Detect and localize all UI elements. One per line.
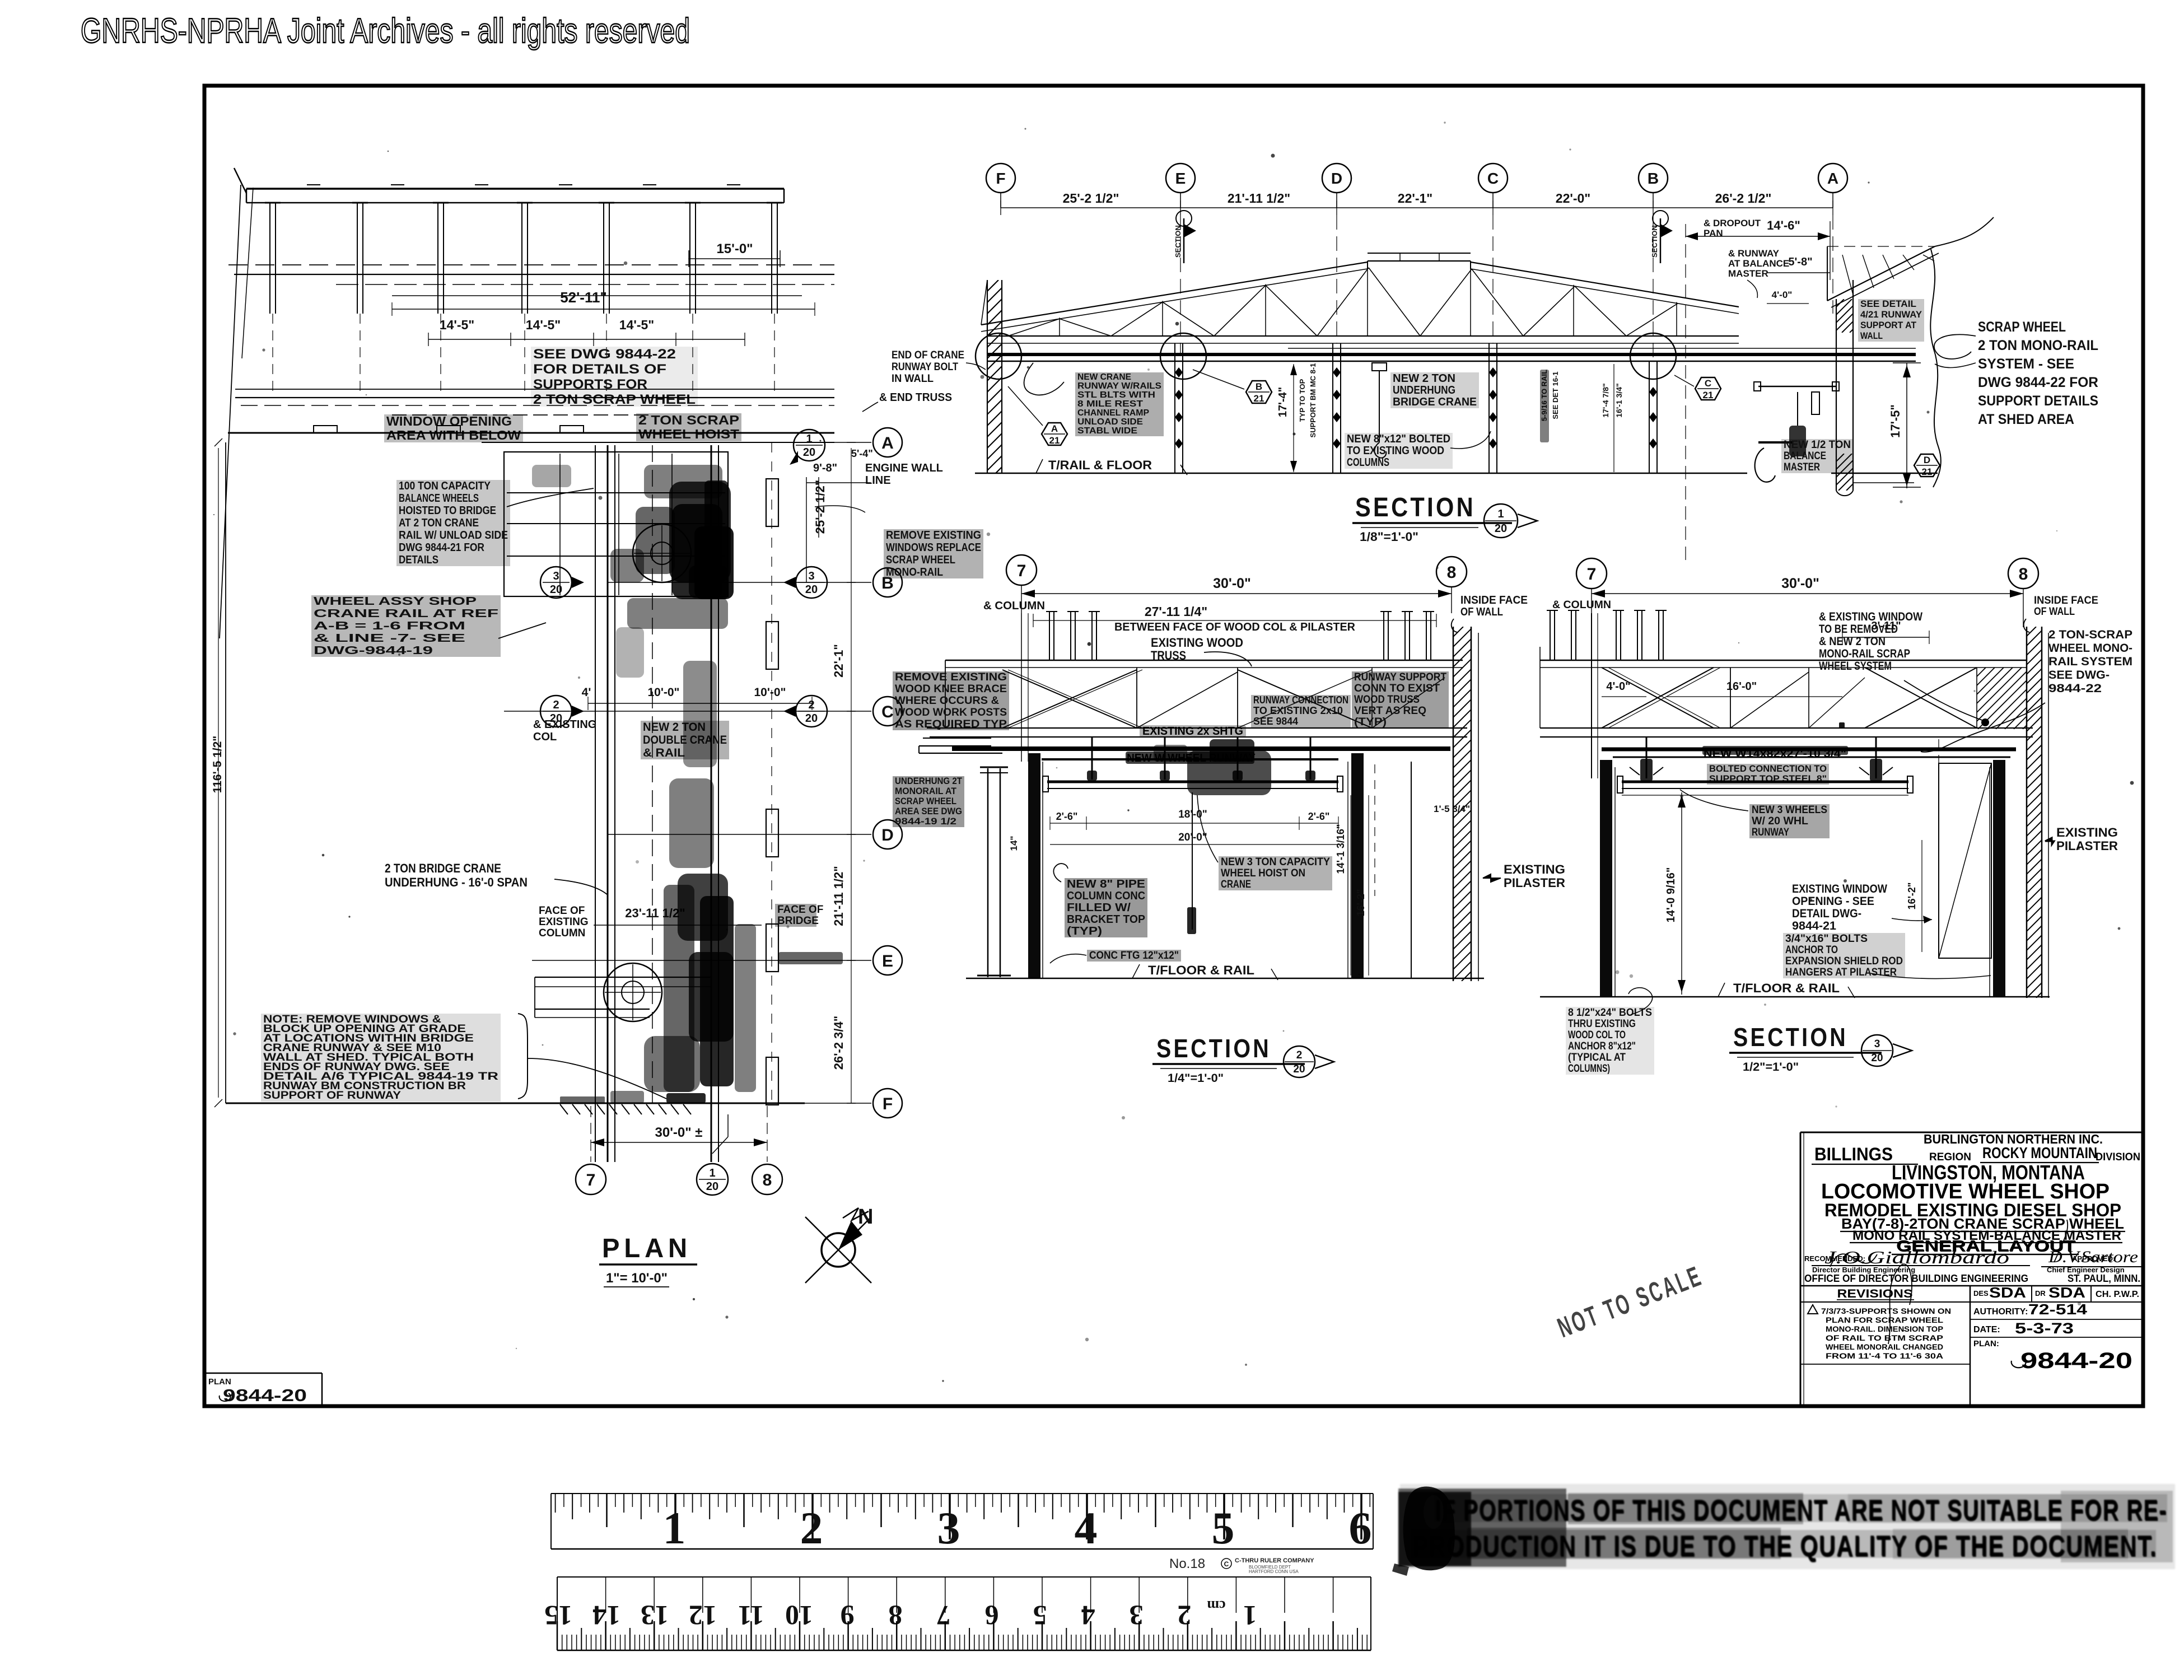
svg-text:RUNWAY CONNECTION: RUNWAY CONNECTION (1253, 694, 1348, 706)
svg-text:FACE OF: FACE OF (539, 905, 585, 917)
svg-text:SEE DETAIL: SEE DETAIL (1860, 298, 1916, 309)
svg-text:2: 2 (1296, 1049, 1303, 1061)
svg-text:SCRAP WHEEL: SCRAP WHEEL (886, 554, 955, 566)
svg-text:A: A (1051, 423, 1058, 434)
svg-text:16'-1 3/4": 16'-1 3/4" (1614, 383, 1623, 417)
svg-text:INSIDE FACE: INSIDE FACE (1460, 594, 1528, 606)
svg-text:NEW 1/2 TON: NEW 1/2 TON (1784, 439, 1851, 451)
svg-text:OFFICE OF DIRECTOR BUILDING EN: OFFICE OF DIRECTOR BUILDING ENGINEERING (1804, 1273, 2028, 1284)
svg-text:A: A (1827, 170, 1838, 187)
svg-text:21'-11 1/2": 21'-11 1/2" (1228, 191, 1290, 206)
svg-text:15'-0": 15'-0" (716, 241, 753, 256)
svg-text:COL: COL (533, 731, 557, 743)
svg-text:FOR DETAILS OF: FOR DETAILS OF (533, 362, 666, 377)
svg-text:21: 21 (1254, 393, 1264, 404)
svg-text:EXISTING WINDOW: EXISTING WINDOW (1792, 883, 1887, 895)
svg-text:C: C (881, 703, 894, 721)
svg-text:7: 7 (1587, 565, 1597, 584)
svg-text:NEW 2 TON: NEW 2 TON (1393, 372, 1455, 385)
svg-text:N: N (858, 1205, 873, 1229)
svg-text:No.18: No.18 (1169, 1556, 1205, 1571)
svg-text:8: 8 (763, 1171, 772, 1189)
svg-text:27'-11 1/4": 27'-11 1/4" (1145, 604, 1207, 619)
svg-text:MONORAIL AT: MONORAIL AT (895, 786, 957, 796)
svg-text:22'-0": 22'-0" (1556, 191, 1590, 206)
svg-text:AS REQUIRED TYP: AS REQUIRED TYP (895, 718, 1007, 730)
svg-text:2 TON MONO-RAIL: 2 TON MONO-RAIL (1978, 338, 2098, 353)
svg-text:RUNWAY BOLT: RUNWAY BOLT (892, 361, 958, 373)
svg-text:LINE: LINE (865, 474, 891, 487)
svg-text:UNLOAD SIDE: UNLOAD SIDE (1077, 417, 1143, 427)
svg-text:END OF CRANE: END OF CRANE (892, 349, 964, 361)
svg-text:EXISTING WOOD: EXISTING WOOD (1151, 636, 1243, 650)
svg-text:NEW 3 WHEELS: NEW 3 WHEELS (1752, 804, 1827, 816)
svg-text:SECTION: SECTION (1355, 493, 1476, 522)
svg-text:BILLINGS: BILLINGS (1814, 1144, 1893, 1164)
svg-text:(TYP): (TYP) (1067, 925, 1102, 937)
svg-text:MASTER: MASTER (1728, 268, 1768, 279)
svg-text:DR: DR (2035, 1289, 2046, 1298)
svg-text:& RUNWAY: & RUNWAY (1728, 248, 1780, 259)
svg-text:ANCHOR 8"x12": ANCHOR 8"x12" (1568, 1040, 1636, 1052)
svg-text:30'-0": 30'-0" (1213, 576, 1251, 591)
svg-text:4'-0": 4'-0" (1772, 290, 1793, 300)
svg-text:FACE OF: FACE OF (777, 904, 823, 916)
svg-text:DETAIL DWG-: DETAIL DWG- (1792, 907, 1861, 920)
svg-text:52'-11": 52'-11" (560, 289, 607, 306)
svg-text:E: E (882, 952, 893, 970)
svg-text:BRIDGE CRANE: BRIDGE CRANE (1393, 396, 1477, 408)
svg-text:14'-0 9/16": 14'-0 9/16" (1665, 867, 1677, 923)
svg-text:TO EXISTING 2x10: TO EXISTING 2x10 (1253, 705, 1343, 716)
svg-text:5-3-73: 5-3-73 (2015, 1320, 2074, 1337)
svg-text:F: F (996, 170, 1005, 187)
svg-text:22'-1": 22'-1" (832, 644, 846, 678)
svg-text:AREA SEE DWG: AREA SEE DWG (895, 806, 962, 816)
svg-text:C: C (1705, 378, 1711, 389)
svg-text:RAIL SYSTEM: RAIL SYSTEM (2048, 655, 2132, 668)
svg-text:VERT AS REQ: VERT AS REQ (1354, 705, 1426, 717)
svg-text:14'-5": 14'-5" (619, 318, 654, 332)
svg-text:D.V.Sartore: D.V.Sartore (2048, 1248, 2138, 1266)
svg-text:20: 20 (1495, 522, 1507, 535)
svg-text:4/21 RUNWAY: 4/21 RUNWAY (1860, 309, 1922, 320)
svg-text:9844-22: 9844-22 (2048, 682, 2102, 695)
svg-text:3: 3 (1130, 1600, 1144, 1631)
svg-text:RUNWAY SUPPORT: RUNWAY SUPPORT (1354, 671, 1446, 683)
svg-text:& LINE -7- SEE: & LINE -7- SEE (314, 632, 465, 645)
svg-text:20: 20 (803, 446, 815, 459)
svg-text:10'-0": 10'-0" (754, 686, 786, 699)
svg-text:REMOVE EXISTING: REMOVE EXISTING (895, 671, 1007, 683)
svg-text:2: 2 (1178, 1600, 1192, 1631)
svg-text:& END TRUSS: & END TRUSS (879, 391, 952, 404)
svg-text:18'-0": 18'-0" (1178, 809, 1207, 820)
svg-text:UNDERHUNG 2T: UNDERHUNG 2T (895, 776, 963, 786)
svg-text:17'-4 7/8": 17'-4 7/8" (1601, 383, 1610, 417)
svg-text:8 MILE REST: 8 MILE REST (1077, 399, 1143, 409)
svg-text:SCRAP WHEEL: SCRAP WHEEL (895, 796, 956, 806)
svg-text:COLUMN: COLUMN (539, 927, 585, 939)
svg-text:T/FLOOR & RAIL: T/FLOOR & RAIL (1733, 981, 1840, 995)
svg-text:EXISTING: EXISTING (539, 916, 589, 928)
svg-text:WINDOW OPENING: WINDOW OPENING (386, 414, 512, 428)
svg-text:14": 14" (1009, 836, 1019, 851)
svg-text:& RAIL: & RAIL (643, 746, 685, 759)
svg-text:NEW 3 TON CAPACITY: NEW 3 TON CAPACITY (1221, 856, 1330, 868)
svg-text:17'-5": 17'-5" (1888, 404, 1902, 438)
svg-text:15: 15 (544, 1600, 572, 1631)
svg-text:C: C (1224, 1560, 1229, 1568)
svg-text:8: 8 (889, 1600, 903, 1631)
svg-text:SYSTEM - SEE: SYSTEM - SEE (1978, 356, 2074, 372)
svg-text:IN WALL: IN WALL (892, 373, 934, 385)
svg-text:EXISTING: EXISTING (1504, 862, 1565, 876)
svg-text:D: D (881, 826, 894, 844)
svg-text:22'-1": 22'-1" (1398, 191, 1432, 206)
svg-text:SUPPORT AT: SUPPORT AT (1860, 320, 1917, 330)
svg-text:F: F (883, 1095, 893, 1113)
svg-text:(TYPICAL AT: (TYPICAL AT (1568, 1052, 1626, 1063)
svg-text:2'-6": 2'-6" (1308, 811, 1330, 822)
svg-text:A: A (881, 434, 894, 452)
svg-text:WOOD WORK POSTS: WOOD WORK POSTS (895, 707, 1007, 718)
svg-text:CHANNEL RAMP: CHANNEL RAMP (1077, 408, 1149, 418)
svg-text:AUTHORITY:: AUTHORITY: (1973, 1307, 2028, 1317)
svg-text:PILASTER: PILASTER (2056, 839, 2118, 853)
svg-text:14'-1 3/16": 14'-1 3/16" (1335, 824, 1346, 874)
svg-text:3: 3 (553, 570, 559, 582)
svg-text:NEW 8" PIPE: NEW 8" PIPE (1067, 878, 1145, 890)
svg-text:7/3/73-SUPPORTS SHOWN ON: 7/3/73-SUPPORTS SHOWN ON (1821, 1306, 1951, 1315)
svg-text:5: 5 (1212, 1502, 1235, 1553)
svg-text:COLUMNS: COLUMNS (1347, 456, 1389, 469)
svg-text:INSIDE FACE: INSIDE FACE (2034, 595, 2098, 606)
svg-text:20: 20 (550, 584, 562, 596)
svg-text:REMOVE EXISTING: REMOVE EXISTING (886, 529, 981, 542)
svg-text:20'-0": 20'-0" (1178, 832, 1207, 843)
svg-text:ENGINE WALL: ENGINE WALL (865, 462, 943, 474)
svg-text:MONO-RAIL: MONO-RAIL (886, 566, 943, 578)
svg-text:SEE DWG-: SEE DWG- (2048, 669, 2110, 682)
svg-text:21: 21 (1703, 390, 1714, 400)
svg-text:COLUMNS): COLUMNS) (1568, 1063, 1610, 1075)
svg-text:1: 1 (806, 433, 812, 445)
svg-text:CONC FTG 12"x12": CONC FTG 12"x12" (1089, 950, 1179, 962)
svg-text:SECTION: SECTION (1156, 1034, 1271, 1063)
svg-text:2'-6": 2'-6" (1056, 811, 1078, 822)
svg-text:9'-8": 9'-8" (813, 462, 837, 474)
svg-text:6: 6 (1349, 1502, 1372, 1553)
svg-text:WHEEL HOIST ON: WHEEL HOIST ON (1221, 867, 1305, 879)
svg-text:3: 3 (808, 570, 814, 582)
svg-text:21: 21 (1922, 466, 1933, 477)
svg-text:1: 1 (1243, 1600, 1257, 1631)
svg-text:CRANE RAIL AT REF: CRANE RAIL AT REF (314, 608, 498, 620)
svg-text:WHERE OCCURS &: WHERE OCCURS & (895, 695, 999, 707)
svg-text:EXPANSION SHIELD ROD: EXPANSION SHIELD ROD (1785, 955, 1903, 967)
svg-text:30'-0" ±: 30'-0" ± (655, 1125, 703, 1140)
svg-text:WHEEL ASSY SHOP: WHEEL ASSY SHOP (314, 595, 477, 608)
svg-text:FILLED W/: FILLED W/ (1067, 902, 1131, 914)
svg-text:WOOD COL TO: WOOD COL TO (1568, 1029, 1626, 1041)
svg-text:C-THRU RULER COMPANY: C-THRU RULER COMPANY (1235, 1557, 1314, 1564)
svg-text:2 TON SCRAP WHEEL: 2 TON SCRAP WHEEL (533, 392, 696, 407)
svg-text:ROCKY MOUNTAIN: ROCKY MOUNTAIN (1982, 1144, 2097, 1161)
svg-text:(TYP): (TYP) (1354, 716, 1387, 728)
svg-text:26'-2 3/4": 26'-2 3/4" (832, 1016, 846, 1070)
svg-text:PILASTER: PILASTER (1504, 876, 1565, 890)
svg-text:DIVISION: DIVISION (2096, 1151, 2140, 1163)
svg-text:9844-20: 9844-20 (223, 1385, 307, 1405)
svg-text:2 TON SCRAP: 2 TON SCRAP (638, 413, 739, 427)
svg-text:DATE:: DATE: (1973, 1325, 2000, 1334)
svg-text:25'-2 1/2": 25'-2 1/2" (1063, 191, 1119, 206)
svg-text:1"= 10'-0": 1"= 10'-0" (606, 1271, 668, 1286)
svg-text:8: 8 (1447, 563, 1457, 582)
svg-text:PLAN FOR SCRAP WHEEL: PLAN FOR SCRAP WHEEL (1826, 1315, 1944, 1324)
svg-text:20: 20 (805, 584, 818, 596)
svg-text:DWG 9844-22 FOR: DWG 9844-22 FOR (1978, 375, 2098, 390)
svg-text:3: 3 (937, 1502, 960, 1553)
svg-text:1: 1 (663, 1502, 686, 1553)
svg-text:20: 20 (805, 712, 818, 725)
svg-text:OPENING - SEE: OPENING - SEE (1792, 895, 1874, 908)
svg-text:TO BE REMOVED: TO BE REMOVED (1819, 623, 1898, 636)
svg-text:14'-5": 14'-5" (440, 318, 474, 332)
svg-text:WHEEL MONO-: WHEEL MONO- (2048, 642, 2132, 655)
svg-text:30'-0": 30'-0" (1781, 576, 1819, 591)
svg-text:cm: cm (1207, 1598, 1226, 1614)
svg-text:8: 8 (2019, 565, 2028, 584)
svg-text:DES: DES (1973, 1289, 1989, 1298)
svg-text:DWG 9844-21 FOR: DWG 9844-21 FOR (399, 542, 484, 554)
svg-text:BRIDGE: BRIDGE (777, 915, 819, 927)
svg-text:2: 2 (800, 1502, 823, 1553)
svg-text:SEE 9844: SEE 9844 (1253, 716, 1298, 727)
svg-text:16'-2": 16'-2" (1355, 889, 1366, 917)
svg-text:T/FLOOR & RAIL: T/FLOOR & RAIL (1148, 963, 1254, 977)
svg-text:D: D (1924, 455, 1930, 465)
svg-text:ST. PAUL, MINN.: ST. PAUL, MINN. (2068, 1273, 2140, 1284)
svg-text:GNRHS-NPRHA Joint Archives - a: GNRHS-NPRHA Joint Archives - all rights … (81, 12, 690, 50)
svg-text:7: 7 (937, 1600, 951, 1631)
svg-text:SUPPORT OF RUNWAY: SUPPORT OF RUNWAY (263, 1090, 401, 1102)
svg-text:10'-0": 10'-0" (648, 686, 680, 699)
svg-text:ANCHOR TO: ANCHOR TO (1785, 944, 1838, 956)
svg-text:SUPPORTS FOR: SUPPORTS FOR (533, 377, 647, 392)
svg-text:SDA: SDA (1989, 1284, 2026, 1301)
svg-text:PAN: PAN (1704, 228, 1723, 239)
svg-text:7: 7 (1017, 562, 1026, 580)
svg-text:MASTER: MASTER (1784, 461, 1820, 473)
svg-text:21'-11 1/2": 21'-11 1/2" (832, 866, 846, 926)
svg-text:1: 1 (709, 1167, 715, 1179)
svg-text:9: 9 (841, 1600, 855, 1631)
svg-text:26'-2 1/2": 26'-2 1/2" (1715, 191, 1772, 206)
svg-text:1/4"=1'-0": 1/4"=1'-0" (1168, 1072, 1224, 1085)
svg-text:14'-6": 14'-6" (1767, 218, 1800, 232)
svg-text:20: 20 (1871, 1052, 1883, 1064)
svg-text:SECTION: SECTION (1174, 225, 1182, 258)
svg-text:OF RAIL TO BTM SCRAP: OF RAIL TO BTM SCRAP (1826, 1333, 1943, 1342)
svg-text:SCRAP WHEEL: SCRAP WHEEL (1978, 319, 2066, 335)
svg-text:SECTION: SECTION (1650, 225, 1659, 258)
svg-text:AT 2 TON CRANE: AT 2 TON CRANE (399, 517, 479, 529)
svg-text:2: 2 (553, 699, 559, 711)
svg-text:3: 3 (1874, 1038, 1880, 1050)
svg-text:HOISTED TO BRIDGE: HOISTED TO BRIDGE (399, 505, 496, 517)
svg-text:CONN TO EXIST: CONN TO EXIST (1354, 683, 1440, 694)
svg-text:WINDOWS REPLACE: WINDOWS REPLACE (886, 542, 981, 554)
svg-text:14: 14 (592, 1600, 620, 1631)
svg-text:HARTFORD CONN USA: HARTFORD CONN USA (1249, 1569, 1299, 1574)
svg-text:E: E (1175, 170, 1186, 187)
svg-text:4'-0": 4'-0" (1606, 680, 1630, 693)
svg-text:WALL: WALL (1860, 330, 1883, 341)
svg-text:20: 20 (706, 1180, 718, 1193)
svg-text:9844-21: 9844-21 (1792, 920, 1836, 932)
svg-text:2: 2 (808, 699, 814, 711)
svg-text:BOLTED CONNECTION TO: BOLTED CONNECTION TO (1709, 763, 1827, 774)
svg-text:14'-5": 14'-5" (526, 318, 561, 332)
svg-text:AT BALANCE: AT BALANCE (1728, 258, 1789, 269)
svg-text:RUNWAY: RUNWAY (1752, 827, 1789, 838)
svg-text:A-B = 1-6 FROM: A-B = 1-6 FROM (314, 620, 465, 632)
svg-text:STABL WIDE: STABL WIDE (1077, 426, 1137, 436)
svg-text:21: 21 (1049, 435, 1060, 446)
svg-text:5'-4": 5'-4" (851, 448, 873, 459)
svg-text:RUNWAY W/RAILS: RUNWAY W/RAILS (1077, 381, 1161, 391)
svg-text:AT SHED AREA: AT SHED AREA (1978, 412, 2074, 427)
svg-text:WHEEL SYSTEM: WHEEL SYSTEM (1819, 660, 1892, 673)
svg-text:MONO-RAIL. DIMENSION TOP: MONO-RAIL. DIMENSION TOP (1826, 1324, 1943, 1333)
svg-text:& EXISTING: & EXISTING (533, 718, 596, 731)
svg-text:20: 20 (1293, 1063, 1305, 1075)
svg-text:5'-8": 5'-8" (1788, 256, 1812, 268)
svg-text:1: 1 (1497, 508, 1504, 520)
svg-text:3/4"x16" BOLTS: 3/4"x16" BOLTS (1785, 933, 1868, 945)
svg-text:DWG-9844-19: DWG-9844-19 (314, 645, 433, 657)
svg-text:SUPPORT BM MC 8-1: SUPPORT BM MC 8-1 (1309, 363, 1317, 438)
svg-text:B: B (1256, 381, 1262, 392)
svg-text:CRANE: CRANE (1221, 879, 1251, 890)
svg-text:WHEEL HOIST: WHEEL HOIST (638, 427, 739, 441)
svg-text:PLAN: PLAN (602, 1234, 692, 1263)
svg-text:7: 7 (586, 1171, 596, 1189)
svg-text:NEW W14x82x27'-10 3/4": NEW W14x82x27'-10 3/4" (1704, 748, 1846, 760)
svg-text:9844-19 1/2: 9844-19 1/2 (895, 816, 956, 827)
svg-text:TRUSS: TRUSS (1151, 648, 1186, 662)
svg-text:& COLUMN: & COLUMN (983, 600, 1045, 612)
svg-text:& NEW 2 TON: & NEW 2 TON (1819, 635, 1886, 648)
svg-text:2 TON BRIDGE CRANE: 2 TON BRIDGE CRANE (385, 861, 501, 875)
svg-text:SEE DET 16-1: SEE DET 16-1 (1551, 371, 1560, 419)
svg-text:RAIL W/ UNLOAD SIDE: RAIL W/ UNLOAD SIDE (399, 529, 508, 542)
svg-text:WHEEL MONORAIL CHANGED: WHEEL MONORAIL CHANGED (1826, 1342, 1943, 1351)
svg-text:WOOD TRUSS: WOOD TRUSS (1354, 694, 1420, 706)
svg-text:REVISIONS: REVISIONS (1837, 1287, 1913, 1300)
svg-text:& DROPOUT: & DROPOUT (1704, 218, 1761, 228)
svg-text:NEW CRANE: NEW CRANE (1077, 372, 1131, 382)
svg-text:17'-4": 17'-4" (1277, 387, 1289, 417)
svg-text:DETAILS: DETAILS (399, 554, 438, 566)
svg-text:TO EXISTING WOOD: TO EXISTING WOOD (1347, 445, 1444, 457)
svg-text:6: 6 (985, 1600, 999, 1631)
svg-text:SUPPORT DETAILS: SUPPORT DETAILS (1978, 393, 2098, 409)
svg-text:WOOD KNEE BRACE: WOOD KNEE BRACE (895, 683, 1007, 695)
svg-text:UNDERHUNG: UNDERHUNG (1393, 384, 1455, 396)
svg-text:SDA: SDA (2048, 1284, 2085, 1301)
svg-text:4: 4 (1075, 1502, 1098, 1553)
svg-text:4': 4' (582, 686, 591, 699)
svg-text:AREA WITH BELOW: AREA WITH BELOW (386, 428, 521, 442)
svg-text:BETWEEN FACE OF WOOD COL & PIL: BETWEEN FACE OF WOOD COL & PILASTER (1114, 621, 1356, 633)
svg-text:16'-2": 16'-2" (1906, 883, 1917, 910)
svg-text:T/RAIL & FLOOR: T/RAIL & FLOOR (1048, 458, 1152, 472)
svg-text:BALANCE WHEELS: BALANCE WHEELS (399, 492, 479, 505)
svg-text:1/8"=1'-0": 1/8"=1'-0" (1360, 530, 1418, 544)
svg-text:2 TON-SCRAP: 2 TON-SCRAP (2048, 628, 2132, 641)
svg-text:1'-5 3/4": 1'-5 3/4" (1434, 804, 1470, 814)
svg-text:100 TON CAPACITY: 100 TON CAPACITY (399, 480, 491, 492)
svg-text:8 1/2"x24" BOLTS: 8 1/2"x24" BOLTS (1568, 1007, 1652, 1019)
svg-text:1/2"=1'-0": 1/2"=1'-0" (1743, 1061, 1799, 1074)
svg-text:D: D (1331, 170, 1342, 187)
svg-text:BALANCE: BALANCE (1784, 450, 1826, 462)
svg-text:16'-0": 16'-0" (1726, 680, 1757, 693)
svg-text:W/ 20 WHL: W/ 20 WHL (1752, 815, 1808, 827)
svg-text:FROM 11'-4 TO 11'-6 30A: FROM 11'-4 TO 11'-6 30A (1826, 1351, 1943, 1360)
svg-text:TYP TO TOP: TYP TO TOP (1298, 379, 1306, 422)
svg-text:116'-5 1/2": 116'-5 1/2" (211, 736, 224, 794)
svg-text:THRU EXISTING: THRU EXISTING (1568, 1018, 1636, 1030)
svg-text:& EXISTING WINDOW: & EXISTING WINDOW (1819, 610, 1922, 623)
svg-text:OF WALL: OF WALL (2034, 606, 2075, 618)
svg-text:4: 4 (1081, 1600, 1095, 1631)
svg-text:C: C (1487, 170, 1499, 187)
svg-text:B: B (1648, 170, 1659, 187)
svg-text:OF WALL: OF WALL (1460, 606, 1503, 618)
svg-text:COLUMN CONC: COLUMN CONC (1067, 890, 1145, 902)
svg-text:PLAN:: PLAN: (1973, 1339, 1999, 1348)
svg-text:UNDERHUNG - 16'-0 SPAN: UNDERHUNG - 16'-0 SPAN (385, 875, 528, 889)
svg-text:MONO-RAIL SCRAP: MONO-RAIL SCRAP (1819, 647, 1910, 660)
svg-text:NEW 8"x12" BOLTED: NEW 8"x12" BOLTED (1347, 433, 1450, 445)
svg-text:SEE DWG 9844-22: SEE DWG 9844-22 (533, 347, 676, 362)
svg-text:CH. P.W.P.: CH. P.W.P. (2096, 1290, 2139, 1299)
svg-text:BRACKET TOP: BRACKET TOP (1067, 913, 1145, 926)
svg-text:HANGERS AT PILASTER: HANGERS AT PILASTER (1785, 967, 1897, 978)
svg-text:5: 5 (1033, 1600, 1047, 1631)
svg-text:STL BLTS WITH: STL BLTS WITH (1077, 390, 1155, 400)
svg-text:SECTION: SECTION (1733, 1023, 1848, 1052)
svg-text:9844-20: 9844-20 (2020, 1348, 2132, 1373)
svg-text:EXISTING: EXISTING (2056, 825, 2118, 839)
svg-text:& COLUMN: & COLUMN (1552, 599, 1611, 611)
